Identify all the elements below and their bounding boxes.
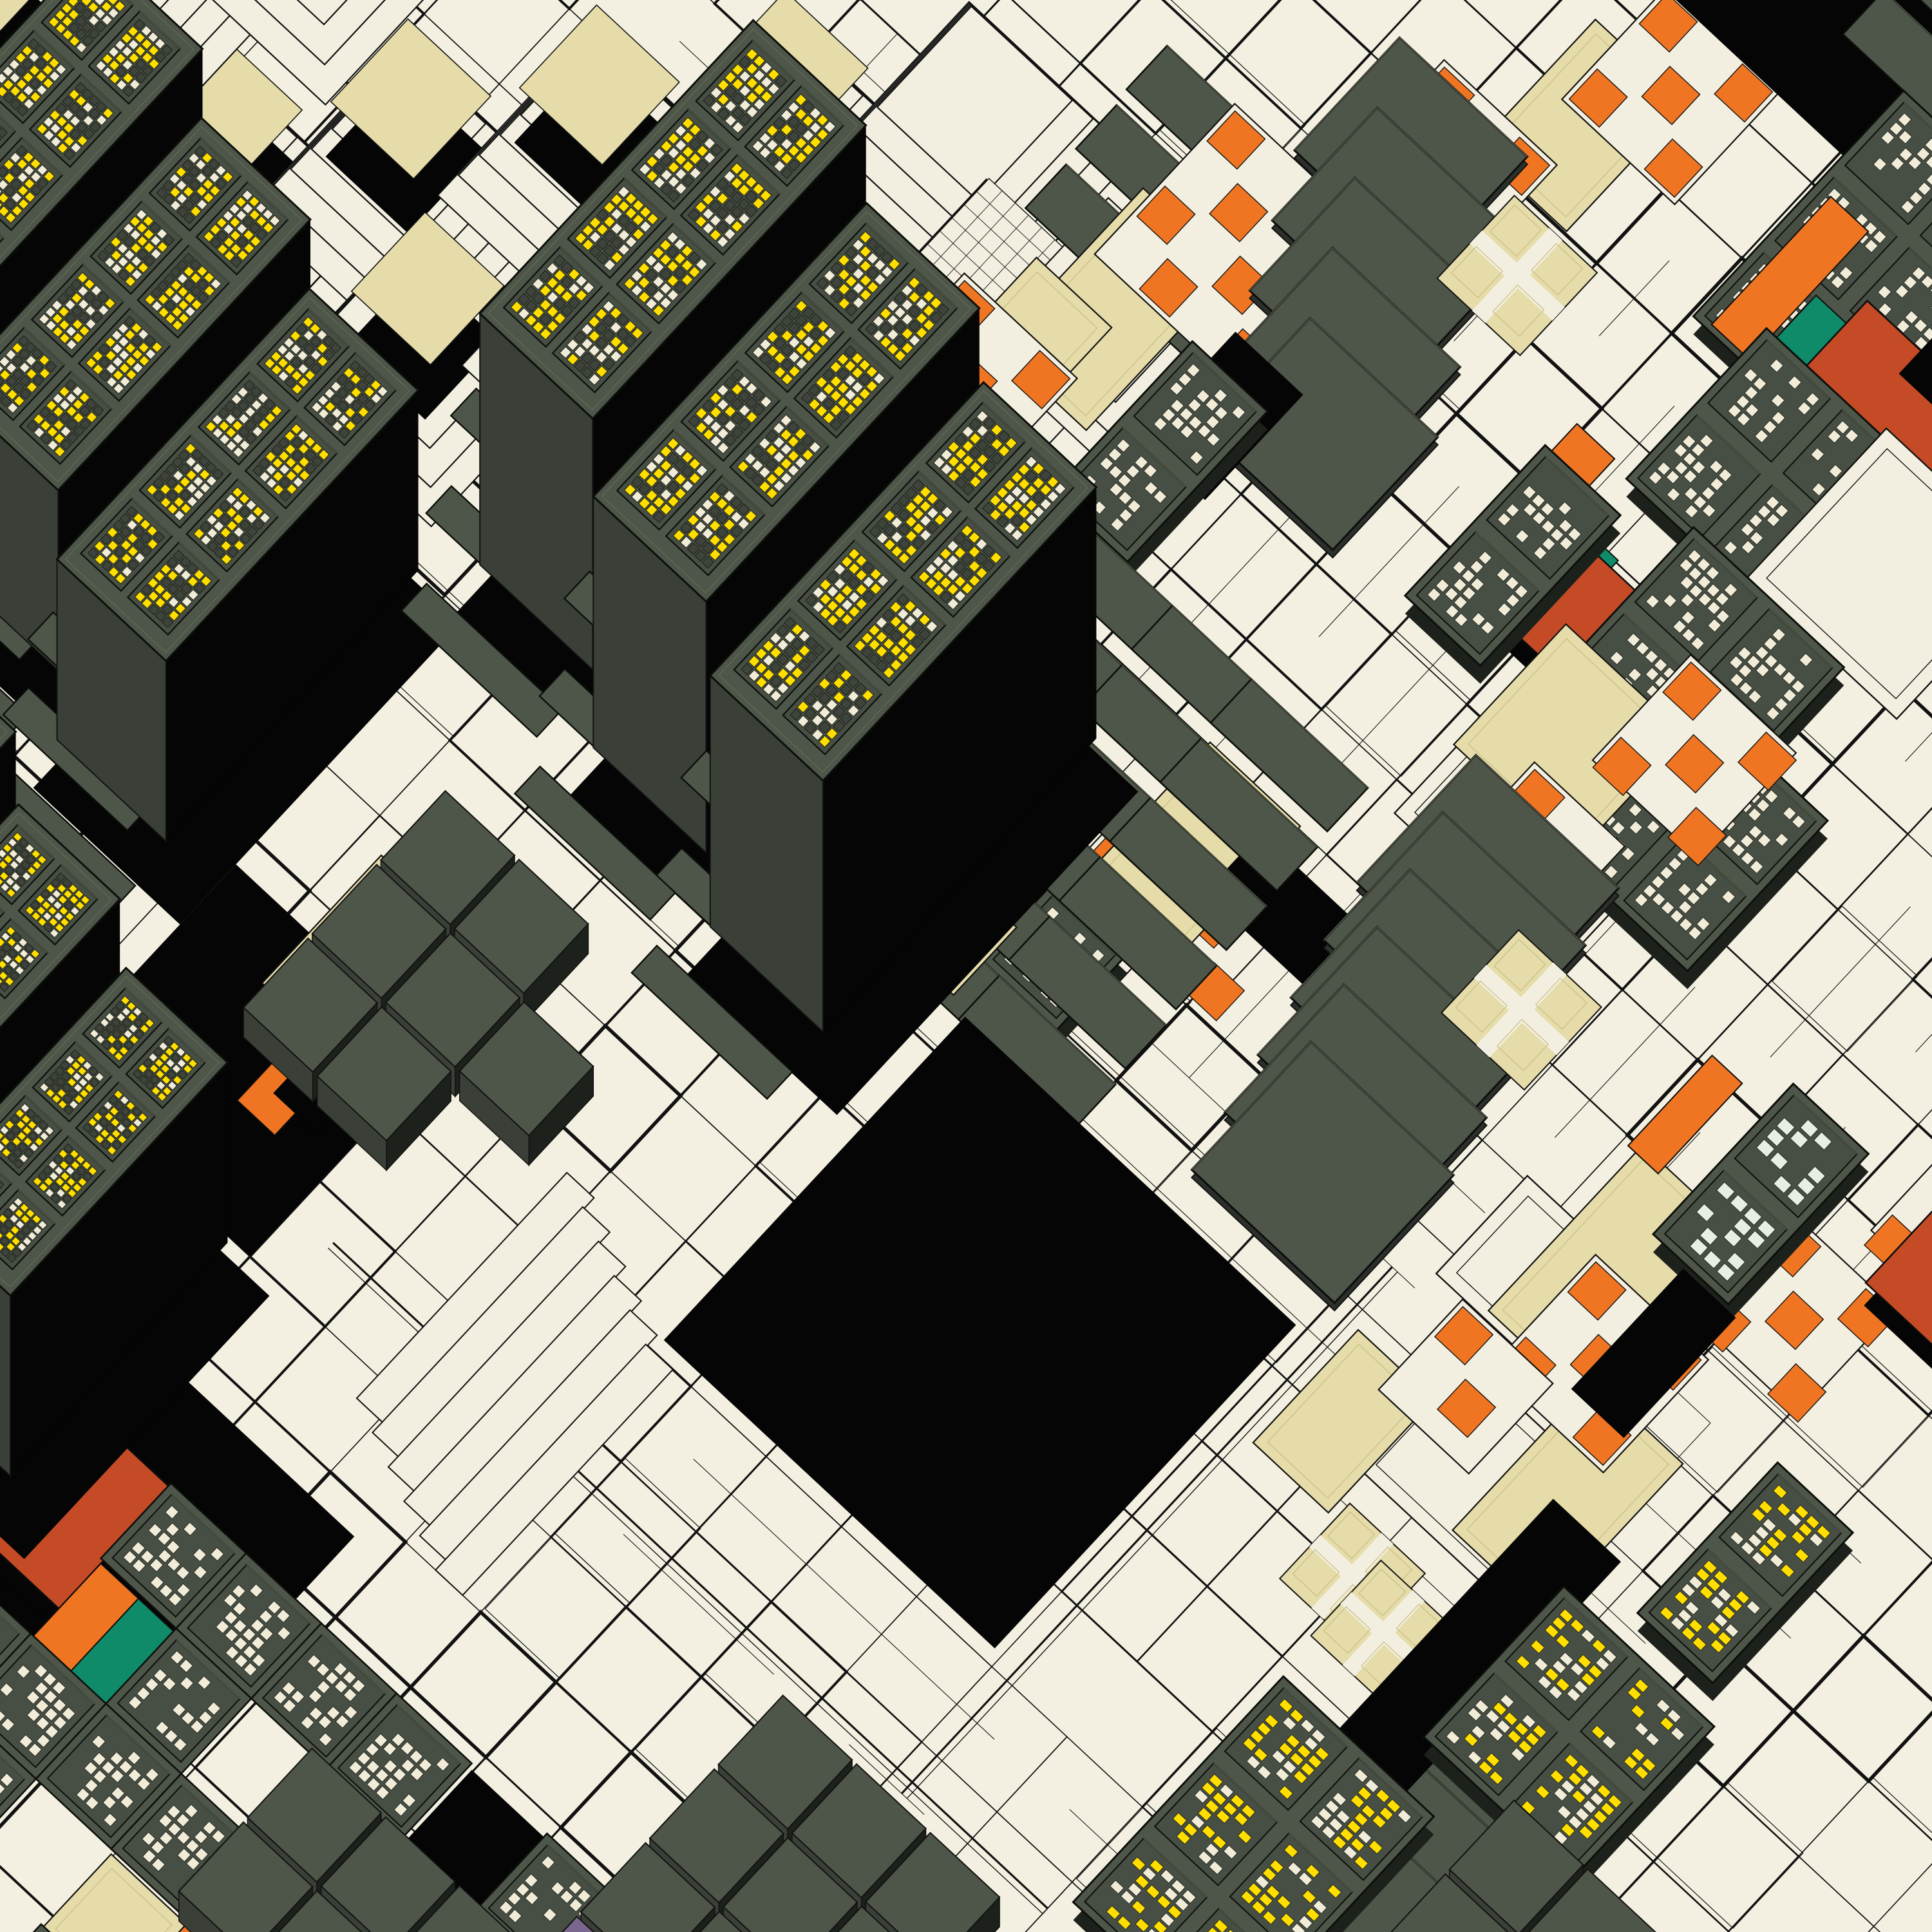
artwork-stage <box>0 0 1932 1932</box>
generative-artwork-canvas <box>0 0 1932 1932</box>
